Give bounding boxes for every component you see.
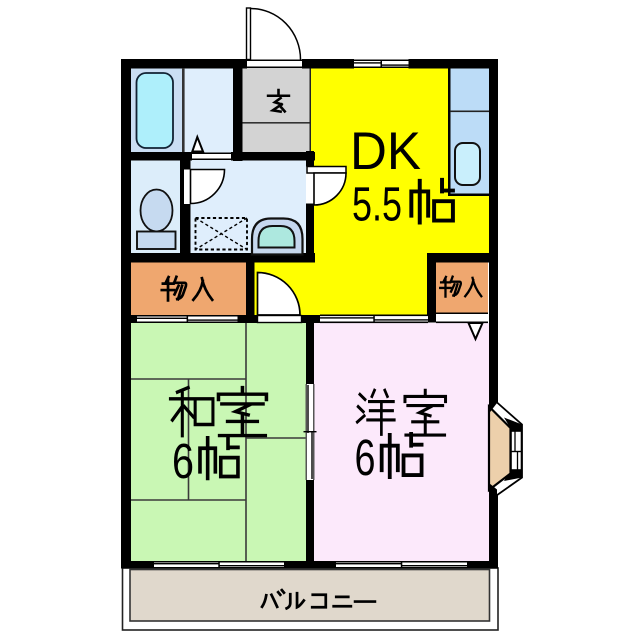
svg-text:5.5: 5.5	[352, 179, 402, 232]
svg-text:6: 6	[355, 429, 376, 486]
svg-text:DK: DK	[350, 122, 421, 181]
svg-text:6: 6	[172, 435, 194, 489]
